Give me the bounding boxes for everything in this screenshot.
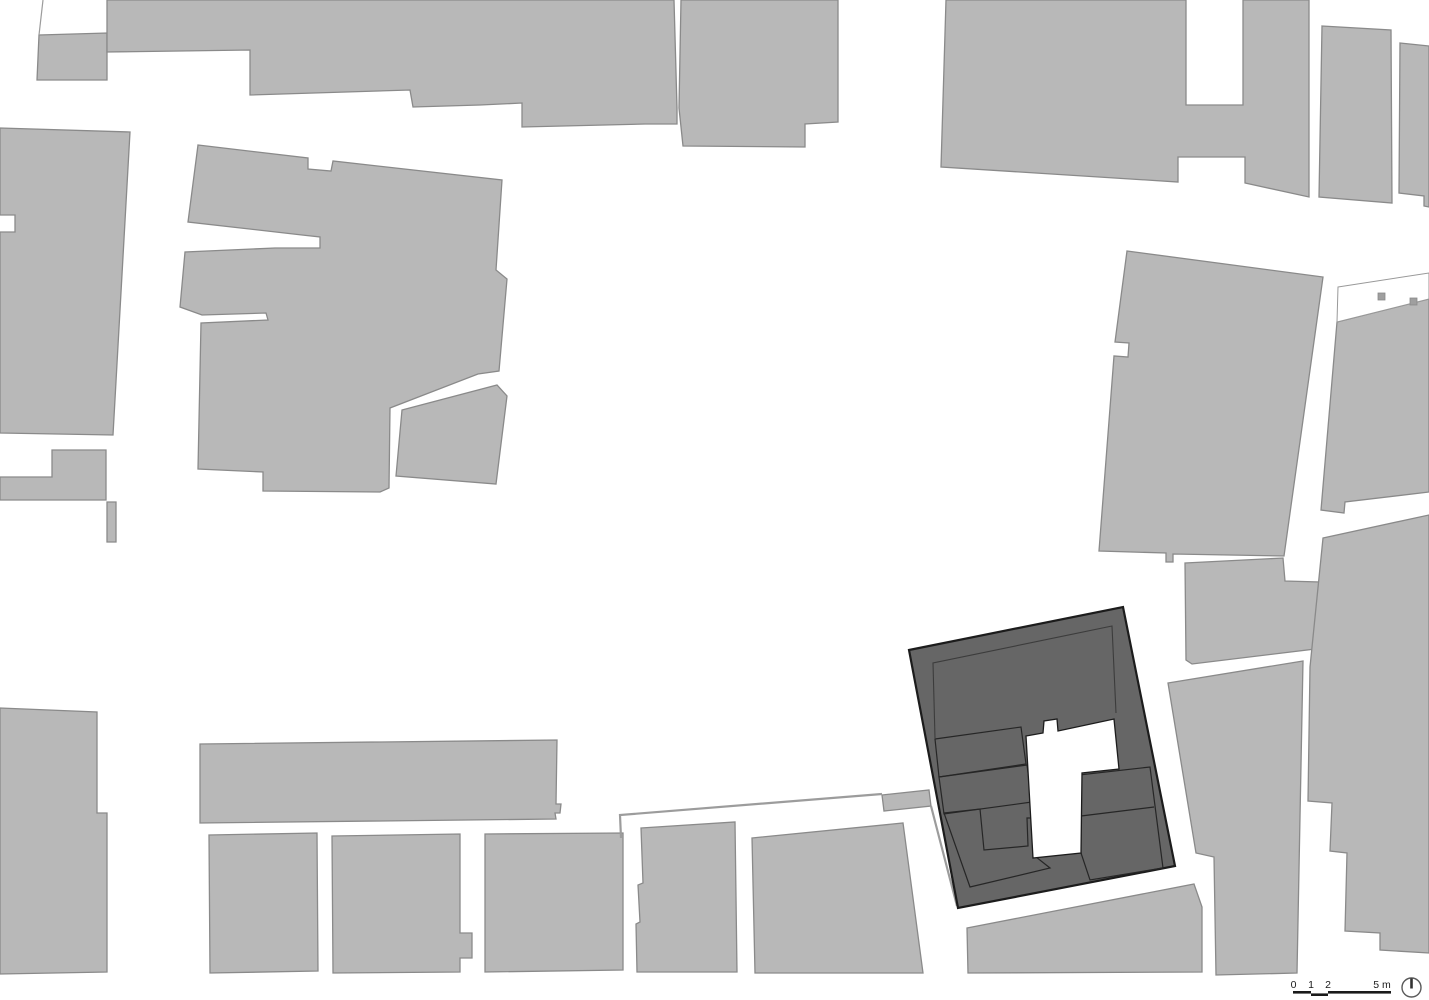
building-bottom-e (752, 823, 923, 973)
building-long-row (200, 740, 561, 823)
scale-bar-label-2: 2 (1325, 979, 1331, 991)
building-right-edge-lower (1308, 515, 1429, 953)
building-bottom-c (485, 833, 623, 972)
building-top-far-right-a (1319, 26, 1392, 203)
garden-hut (882, 790, 931, 811)
building-left-step (0, 450, 106, 500)
parcel-line-nw (39, 0, 43, 35)
scale-bar-label-1: 1 (1308, 979, 1314, 991)
scale-bar-segment-2 (1328, 991, 1391, 994)
building-nw-corner-block (37, 33, 107, 80)
building-bottom-d (636, 822, 737, 972)
building-top-band-east (679, 0, 838, 147)
building-center-right-tall (1099, 251, 1323, 562)
scale-bar-segment-0 (1293, 991, 1311, 994)
site-plan-figure-ground: 0125 m (0, 0, 1429, 1000)
building-top-far-right-b (1399, 43, 1429, 207)
building-top-right-block (941, 0, 1309, 197)
building-left-mid (0, 128, 130, 435)
building-bottom-a (209, 833, 318, 973)
scale-bar-label-3: 5 m (1373, 979, 1391, 991)
building-top-band-west (107, 0, 677, 127)
scale-bar-label-0: 0 (1291, 979, 1297, 991)
site-plan-canvas: 0125 m (0, 0, 1429, 1000)
building-right-edge-upper (1321, 299, 1429, 513)
building-east-of-subject-upper (1185, 558, 1320, 664)
plot-shed-b (1410, 298, 1417, 305)
scale-bar-segment-1 (1311, 993, 1328, 996)
building-left-bottom (0, 708, 107, 974)
building-bottom-b (332, 834, 472, 973)
plot-shed-a (1378, 293, 1385, 300)
building-left-sliver (107, 502, 116, 542)
